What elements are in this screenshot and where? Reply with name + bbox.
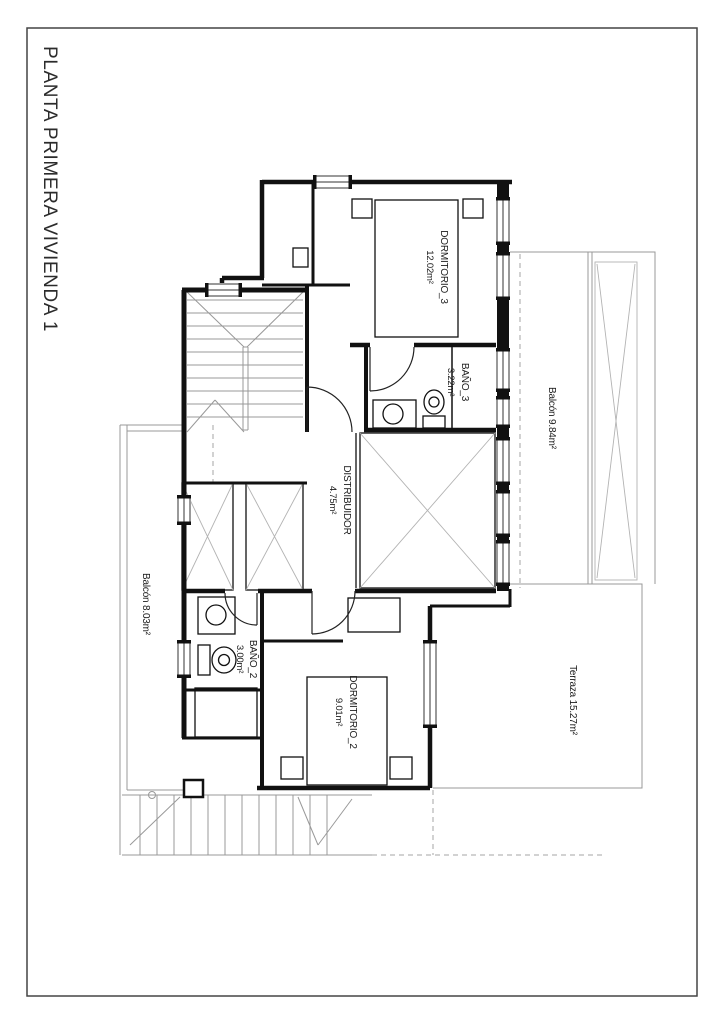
sink-icon-bath2 xyxy=(198,597,235,634)
wardrobe-upper-room xyxy=(293,248,308,267)
svg-text:BAÑO_2: BAÑO_2 xyxy=(247,640,260,679)
svg-text:3.00m²: 3.00m² xyxy=(234,645,245,673)
room-label-terraza: Terraza 15.27m² xyxy=(567,665,578,736)
window-unit-stair-wall xyxy=(205,283,242,297)
room-label-balcon-left: Balcón 8.03m² xyxy=(140,573,151,636)
svg-text:DORMITORIO_2: DORMITORIO_2 xyxy=(347,675,358,749)
svg-text:3.22m²: 3.22m² xyxy=(445,368,456,396)
svg-text:BAÑO_3: BAÑO_3 xyxy=(459,363,472,402)
toilet-icon-bath3 xyxy=(423,390,445,428)
toilet-icon-bath2 xyxy=(198,645,236,675)
closet-under-bath2 xyxy=(195,688,257,737)
sink-icon-bath3 xyxy=(373,400,416,428)
svg-text:12.02m²: 12.02m² xyxy=(424,250,435,283)
window-unit-top-wall xyxy=(313,175,352,189)
svg-text:Balcón 9.84m²: Balcón 9.84m² xyxy=(546,387,557,450)
svg-text:DORMITORIO_3: DORMITORIO_3 xyxy=(438,230,449,304)
svg-text:Balcón 8.03m²: Balcón 8.03m² xyxy=(140,573,151,636)
svg-text:DISTRIBUIDOR: DISTRIBUIDOR xyxy=(341,465,352,534)
floor-plan-drawing: PLANTA PRIMERA VIVIENDA 1 xyxy=(0,0,724,1024)
window-units-right-wall xyxy=(496,197,510,586)
room-label-balcon-right: Balcón 9.84m² xyxy=(546,387,557,450)
closet-distribuidor-large xyxy=(356,433,495,588)
wardrobe-dormitorio-2 xyxy=(348,598,400,632)
closet-hall-left-2 xyxy=(246,483,303,590)
drawing-title: PLANTA PRIMERA VIVIENDA 1 xyxy=(39,46,60,332)
window-unit-dormitorio-2 xyxy=(423,640,437,728)
svg-text:4.75m²: 4.75m² xyxy=(327,486,338,514)
svg-text:Terraza 15.27m²: Terraza 15.27m² xyxy=(567,665,578,736)
svg-text:9.01m²: 9.01m² xyxy=(333,698,344,726)
pillar xyxy=(184,780,203,797)
